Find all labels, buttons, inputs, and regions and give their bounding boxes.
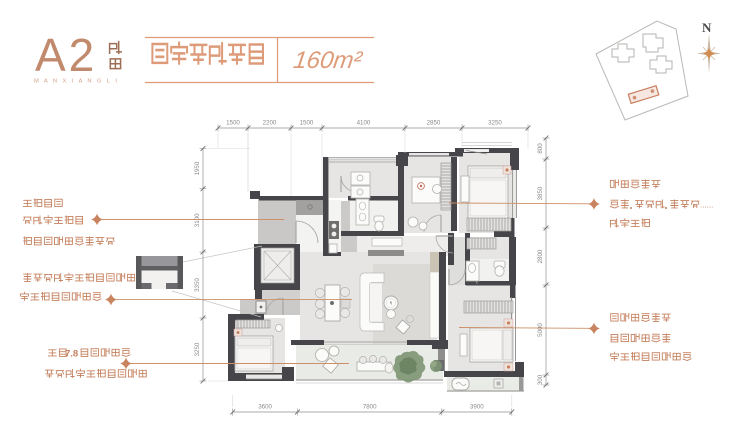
svg-text:N: N	[702, 20, 712, 35]
svg-text:3900: 3900	[470, 404, 484, 411]
svg-text:2850: 2850	[427, 120, 441, 127]
svg-text:3850: 3850	[537, 186, 544, 200]
svg-text:M A N X I A N G L I: M A N X I A N G L I	[34, 79, 119, 85]
svg-text:1500: 1500	[300, 120, 314, 127]
svg-text:3350: 3350	[194, 278, 201, 292]
svg-text:3250: 3250	[488, 120, 502, 127]
svg-text:3100: 3100	[194, 213, 201, 227]
svg-text:3600: 3600	[258, 404, 272, 411]
svg-text:300: 300	[537, 374, 544, 385]
svg-text:1950: 1950	[194, 161, 201, 175]
svg-text:2200: 2200	[263, 120, 277, 127]
svg-text:160m²: 160m²	[292, 47, 365, 74]
svg-text:A2: A2	[35, 29, 97, 81]
svg-text:3250: 3250	[194, 342, 201, 356]
svg-text:1500: 1500	[226, 120, 240, 127]
svg-text:7800: 7800	[363, 404, 377, 411]
svg-text:4100: 4100	[357, 120, 371, 127]
svg-text:......: ......	[700, 201, 713, 210]
svg-text:800: 800	[537, 143, 544, 154]
svg-text:2800: 2800	[537, 249, 544, 263]
svg-text:5000: 5000	[537, 323, 544, 337]
svg-text:7.8: 7.8	[65, 349, 78, 360]
